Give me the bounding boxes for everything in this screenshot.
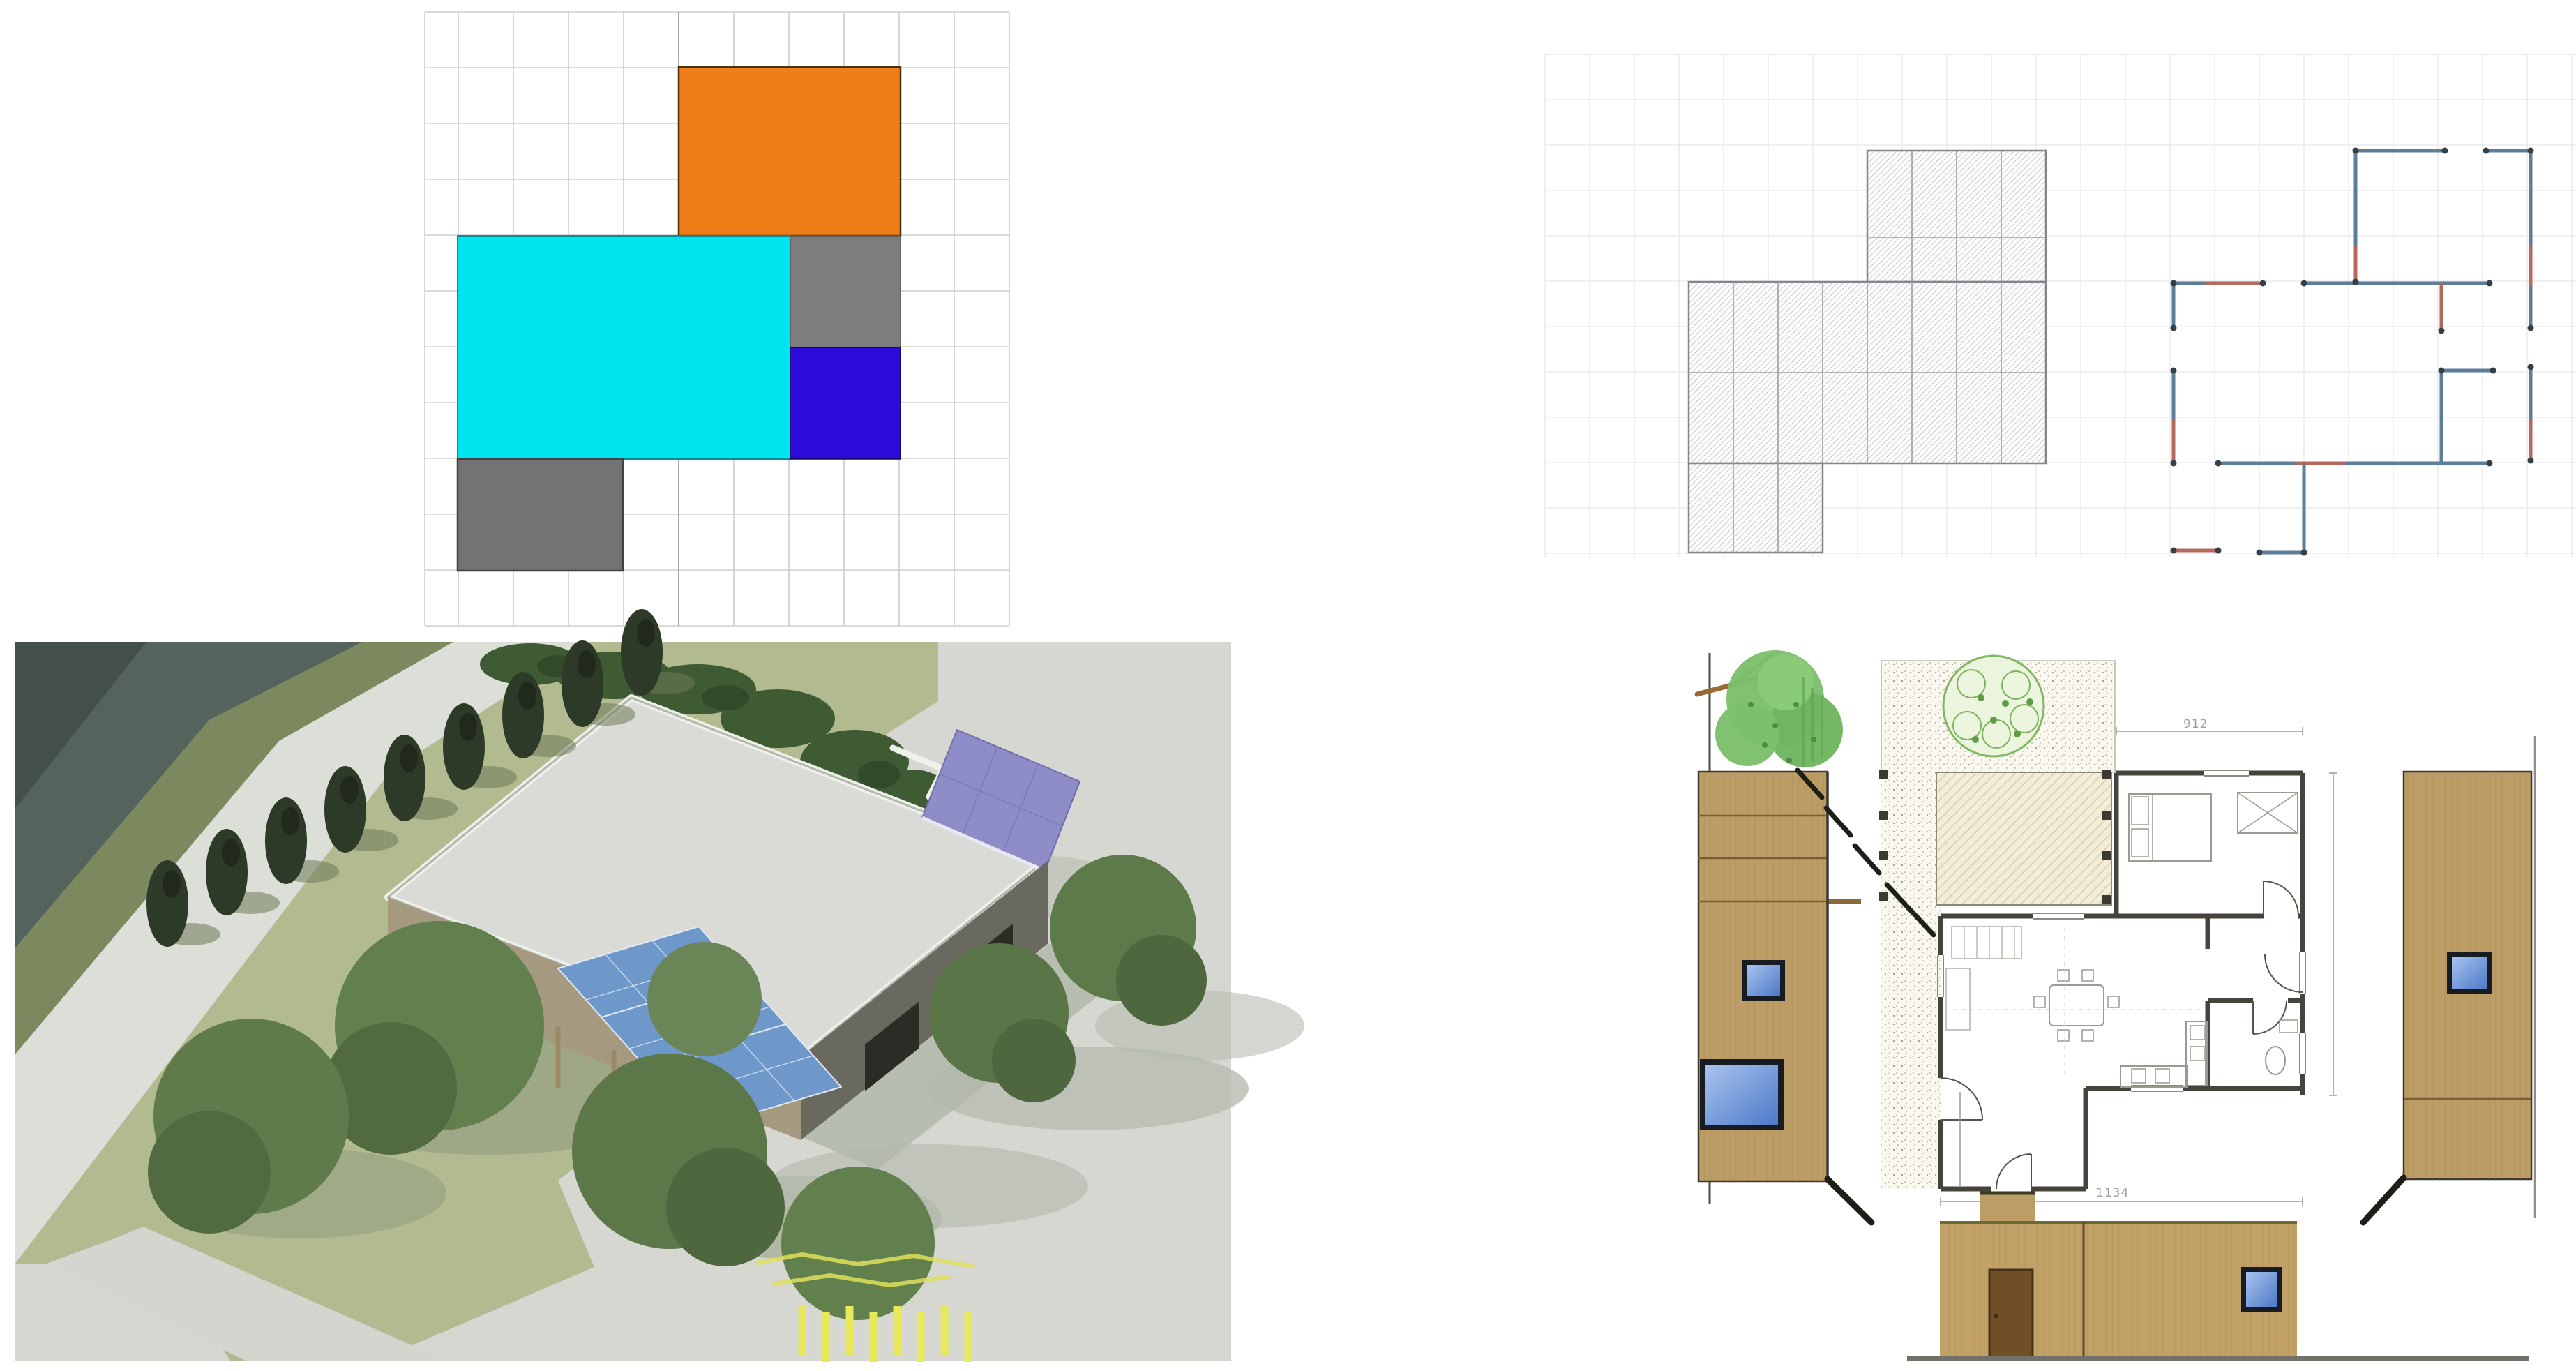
- pergola-posts: [1879, 811, 1888, 820]
- cypress-row: [281, 807, 299, 835]
- wall-sketch-ticks: [2301, 550, 2307, 556]
- cypress-row: [637, 619, 655, 647]
- wall-sketch-ticks: [2171, 325, 2177, 331]
- plan-sheet: [1697, 650, 2535, 1358]
- chairs: [2058, 1030, 2069, 1041]
- plan-tree-dots: [2026, 698, 2033, 705]
- window-glass: [2246, 1272, 2277, 1307]
- pergola-posts: [2102, 811, 2111, 820]
- cyan-block: [458, 236, 790, 459]
- kitchen-counter: [2121, 1066, 2187, 1087]
- collage-drawing: [0, 0, 2576, 1371]
- blue-block: [790, 347, 901, 459]
- tree-dots: [1811, 737, 1816, 742]
- tree: [1116, 935, 1207, 1026]
- tree-dots: [1786, 758, 1792, 763]
- plan-tree-dots: [1978, 694, 1984, 701]
- door-arc: [2265, 954, 2303, 992]
- bed-pillow: [2132, 829, 2148, 857]
- wall-sketch-ticks: [2487, 280, 2493, 287]
- tree-dots: [1748, 702, 1754, 707]
- render-view: [15, 609, 1304, 1362]
- wall-sketch-ticks: [2442, 148, 2448, 154]
- chairs: [2108, 996, 2119, 1007]
- chairs: [2082, 970, 2093, 981]
- pergola-tie-dashes: [1855, 846, 1879, 873]
- orange-block: [679, 67, 901, 236]
- dark-gray-block: [458, 459, 623, 571]
- cypress-row: [163, 870, 181, 898]
- wall-sketch-ticks: [2353, 279, 2359, 285]
- elevation-strut: [2363, 1178, 2404, 1222]
- dining-table: [2049, 985, 2104, 1026]
- dimension-label-top: 912: [2183, 717, 2208, 731]
- appliances: [2132, 1069, 2146, 1083]
- cypress-row: [578, 650, 596, 678]
- elevation-strut: [1828, 1179, 1871, 1222]
- bed: [2129, 794, 2211, 861]
- wall-sketch-ticks: [2215, 548, 2222, 554]
- window-glass: [2452, 957, 2487, 989]
- wall-sketch-ticks: [2257, 550, 2263, 556]
- elevation-tree: [1715, 702, 1779, 766]
- hatched-block-bottom: [1689, 463, 1823, 553]
- cypress-row: [340, 776, 359, 804]
- wall-sketch-ticks: [2171, 280, 2177, 287]
- hedge-texture: [702, 685, 749, 710]
- plan-tree-dots: [2014, 731, 2021, 737]
- elevation-tree: [1758, 654, 1814, 710]
- wall-sketch-ticks: [2260, 280, 2266, 287]
- wall-sketch-ticks: [2528, 364, 2534, 370]
- pergola-posts: [2102, 770, 2111, 779]
- pergola-deck: [1936, 772, 2111, 905]
- wall-sketch-ticks: [2301, 280, 2307, 287]
- bed-pillow: [2132, 797, 2148, 825]
- chairs: [2058, 970, 2069, 981]
- chairs: [2082, 1030, 2093, 1041]
- pergola-tie-dashes: [1826, 808, 1851, 835]
- door-arc: [1941, 1078, 1982, 1120]
- pergola-posts: [1879, 770, 1888, 779]
- chairs: [2034, 996, 2045, 1007]
- cypress-row: [400, 744, 418, 772]
- window-glass: [1747, 965, 1780, 996]
- door-arc: [1996, 1154, 2031, 1189]
- gravel-strip: [1881, 772, 1941, 1189]
- tree: [148, 1111, 271, 1234]
- tree: [781, 1167, 935, 1320]
- stairs: [1952, 927, 2021, 959]
- cypress-row: [518, 682, 536, 710]
- wall-sketch-ticks: [2528, 458, 2534, 464]
- pergola-posts: [2102, 851, 2111, 860]
- wall-sketch-ticks: [2171, 548, 2177, 554]
- plan-tree-dots: [1990, 717, 1997, 724]
- wall-sketch-ticks: [2353, 148, 2359, 154]
- massing-grid-diagram: [425, 12, 1009, 626]
- appliances: [2155, 1069, 2169, 1083]
- tree-dots: [1762, 742, 1768, 748]
- pergola-posts: [1879, 892, 1888, 901]
- wall-sketch-ticks: [2439, 368, 2445, 374]
- hedge-texture: [858, 761, 900, 788]
- wall-sketch-ticks: [2528, 148, 2534, 154]
- cypress-row: [222, 839, 240, 867]
- door-arc: [2253, 1001, 2287, 1034]
- tree: [992, 1019, 1076, 1102]
- window-glass: [1705, 1065, 1778, 1125]
- architecture-collage: 912 1134: [0, 0, 2576, 1371]
- pergola-posts: [1879, 851, 1888, 860]
- cypress-row: [459, 713, 477, 741]
- tree-dots: [1793, 702, 1799, 707]
- plan-tree-dots: [2002, 700, 2009, 707]
- front-door: [1989, 1270, 2033, 1357]
- hatched-plan-diagram: [1545, 54, 2576, 557]
- tree: [647, 942, 762, 1056]
- front-parapet: [1980, 1193, 2035, 1224]
- wall-sketch-ticks: [2215, 460, 2222, 467]
- appliances: [2190, 1026, 2204, 1040]
- gray-block: [790, 236, 901, 347]
- appliances: [2190, 1047, 2204, 1061]
- tree: [666, 1148, 785, 1266]
- tree-dots: [1772, 723, 1778, 728]
- wall-sketch-ticks: [2487, 460, 2493, 467]
- wall-sketch-ticks: [2483, 148, 2490, 154]
- wall-sketch-ticks: [2171, 460, 2177, 467]
- wall-sketch-ticks: [2171, 368, 2177, 374]
- dimension-label-bottom: 1134: [2096, 1186, 2129, 1200]
- plan-tree-dots: [1972, 736, 1979, 743]
- wall-sketch-ticks: [2490, 368, 2496, 374]
- wall-sketch-ticks: [2439, 328, 2445, 334]
- toilet: [2266, 1047, 2285, 1074]
- pergola-posts: [2102, 895, 2111, 904]
- sofa: [1946, 968, 1970, 1030]
- sink: [2280, 1020, 2298, 1033]
- door-knob: [1994, 1314, 1998, 1318]
- wall-sketch-ticks: [2528, 325, 2534, 331]
- door-arc: [2264, 881, 2298, 916]
